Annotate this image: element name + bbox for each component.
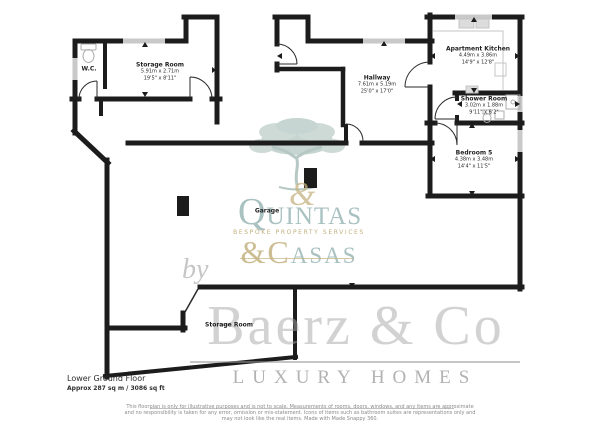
room-label-storage: Storage Room 5.91m x 2.71m 19'5" x 8'11" xyxy=(136,62,184,83)
room-label-kitchen: Apartment Kitchen 4.49m x 3.86m 14'9" x … xyxy=(446,46,510,67)
room-name: Garage xyxy=(255,208,279,215)
floor-title: Lower Ground Floor xyxy=(67,374,145,383)
room-name: W.C. xyxy=(81,66,96,73)
room-label-shower: Shower Room 3.02m x 1.88m 9'11" x 6'2" xyxy=(461,96,508,117)
room-dim-metric: 5.91m x 2.71m xyxy=(136,69,184,76)
floorplan-page: & QUINTAS BESPOKE PROPERTY SERVICES &CAS… xyxy=(0,0,600,429)
disclaimer: This floorplan is only for illustrative … xyxy=(0,404,600,422)
room-name: Storage Room xyxy=(136,62,184,69)
room-name: Storage Room xyxy=(205,322,253,329)
wc-toilet-icon xyxy=(81,44,96,63)
room-name: Shower Room xyxy=(461,96,508,103)
room-dim-metric: 4.49m x 3.86m xyxy=(446,53,510,60)
disclaimer-line-3: may not look like the real items. Made w… xyxy=(0,416,600,422)
room-label-storage2: Storage Room xyxy=(205,322,253,329)
olive-tree-watermark xyxy=(249,118,345,190)
room-name: Apartment Kitchen xyxy=(446,46,510,53)
room-dim-imperial: 14'4" x 11'5" xyxy=(455,164,493,171)
room-dim-imperial: 14'9" x 12'8" xyxy=(446,60,510,67)
floor-area: Approx 287 sq m / 3086 sq ft xyxy=(67,385,165,392)
room-dim-imperial: 9'11" x 6'2" xyxy=(461,110,508,117)
room-label-wc: W.C. xyxy=(81,66,96,73)
room-label-garage: Garage xyxy=(255,208,279,215)
room-dim-imperial: 19'5" x 8'11" xyxy=(136,76,184,83)
doors-group xyxy=(79,44,457,312)
room-dim-imperial: 25'0" x 17'0" xyxy=(358,89,396,96)
room-dim-metric: 4.38m x 3.48m xyxy=(455,157,493,164)
room-label-bedroom: Bedroom 5 4.38m x 3.48m 14'4" x 11'5" xyxy=(455,150,493,171)
room-dim-metric: 7.61m x 5.19m xyxy=(358,82,396,89)
room-dim-metric: 3.02m x 1.88m xyxy=(461,103,508,110)
room-name: Hallway xyxy=(358,75,396,82)
room-name: Bedroom 5 xyxy=(455,150,493,157)
room-label-hallway: Hallway 7.61m x 5.19m 25'0" x 17'0" xyxy=(358,75,396,96)
